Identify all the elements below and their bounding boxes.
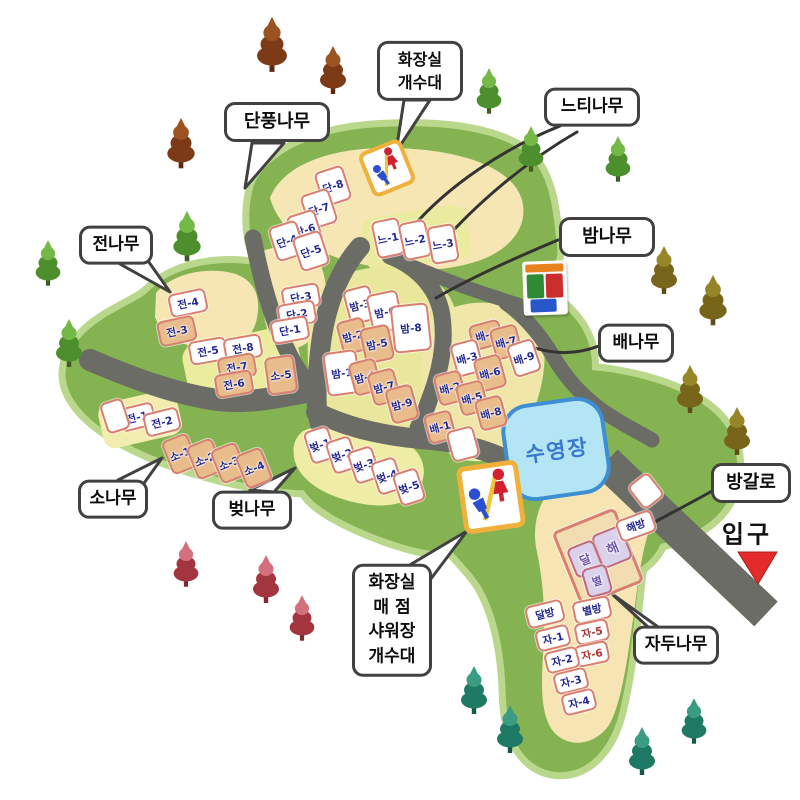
- site-label: 전-2: [150, 412, 174, 432]
- callout-pear: 배나무: [598, 324, 674, 363]
- site-label: 밤-9: [390, 394, 414, 414]
- tree-olive-icon: [651, 246, 677, 294]
- site-label: 전-5: [196, 342, 220, 360]
- site-label: 자-3: [559, 671, 583, 691]
- site-label: 배-6: [478, 363, 502, 383]
- site-label: 자-1: [541, 628, 565, 648]
- tree-red-icon: [253, 555, 279, 603]
- site-label: 느-3: [431, 235, 455, 253]
- callout-zelkova: 느티나무: [544, 88, 640, 127]
- site-label: 소-4: [241, 457, 266, 479]
- callout-fir: 전나무: [79, 226, 153, 265]
- tree-green-icon: [173, 211, 200, 261]
- site-label: 밤-5: [365, 334, 389, 353]
- site-소-5: 소-5: [264, 354, 299, 396]
- site-label: 벚-5: [397, 477, 422, 498]
- tree-green-icon: [36, 240, 61, 286]
- site-label: 느-1: [376, 228, 400, 247]
- site-label: 전-4: [176, 293, 200, 312]
- callout-services-bottom: 화장실 매 점 샤워장 개수대: [352, 564, 432, 677]
- site-label: 단-5: [299, 241, 324, 262]
- tree-maple-icon: [257, 17, 287, 72]
- tree-red-icon: [174, 541, 199, 587]
- tree-green-icon: [477, 68, 502, 114]
- tree-green-icon: [606, 136, 631, 182]
- site-밤-8: 밤-8: [390, 302, 433, 354]
- callout-chestnut: 밤나무: [559, 217, 655, 257]
- site-label: 밤-8: [400, 319, 423, 336]
- female-figure-icon: [382, 146, 400, 171]
- blue-bin: [530, 299, 556, 313]
- tree-olive-icon: [699, 275, 726, 325]
- tree-teal-icon: [682, 698, 707, 744]
- site-label: 달방: [534, 604, 556, 623]
- site-label: 별: [590, 572, 604, 590]
- bin-lid: [525, 263, 563, 272]
- site-label: 전-6: [222, 375, 246, 393]
- tree-teal-icon: [461, 666, 487, 714]
- site-label: 자-6: [580, 644, 604, 663]
- tree-red-icon: [290, 595, 315, 641]
- campground-map: 수영장 입구 단-8단-7단-6단-4단-5단-3단-2단-1느-1느-2느-3…: [0, 0, 800, 800]
- red-bin: [546, 273, 564, 298]
- callout-cherry: 벚나무: [212, 491, 292, 530]
- site-label: 전-3: [165, 321, 189, 340]
- site-label: 느-2: [403, 230, 427, 249]
- site-label: 단-1: [278, 321, 302, 339]
- tree-maple-icon: [167, 118, 194, 168]
- callout-bungalow: 방갈로: [711, 463, 791, 503]
- callout-toilet-sink-top: 화장실 개수대: [377, 41, 463, 101]
- tree-maple-icon: [320, 46, 346, 94]
- site-label: 별방: [581, 601, 603, 620]
- entrance-label: 입구: [722, 515, 772, 550]
- green-bin: [527, 274, 545, 299]
- callout-plum: 자두나무: [633, 626, 719, 665]
- tree-teal-icon: [629, 727, 655, 775]
- site-label: 소-5: [269, 366, 292, 384]
- male-figure-icon: [371, 163, 392, 186]
- callout-pine: 소나무: [78, 480, 148, 519]
- site-label: 자-2: [550, 650, 574, 670]
- site-label: 자-4: [567, 692, 591, 712]
- site-label: 배-9: [512, 348, 537, 369]
- recycling-bins-icon: [522, 260, 568, 316]
- callout-maple: 단풍나무: [224, 102, 330, 142]
- site-label: 해방: [624, 516, 647, 537]
- restroom-sign-icon: [456, 459, 527, 535]
- site-label: 배-8: [479, 403, 503, 423]
- site-label: 해: [603, 536, 621, 558]
- site-label: 자-5: [580, 622, 604, 641]
